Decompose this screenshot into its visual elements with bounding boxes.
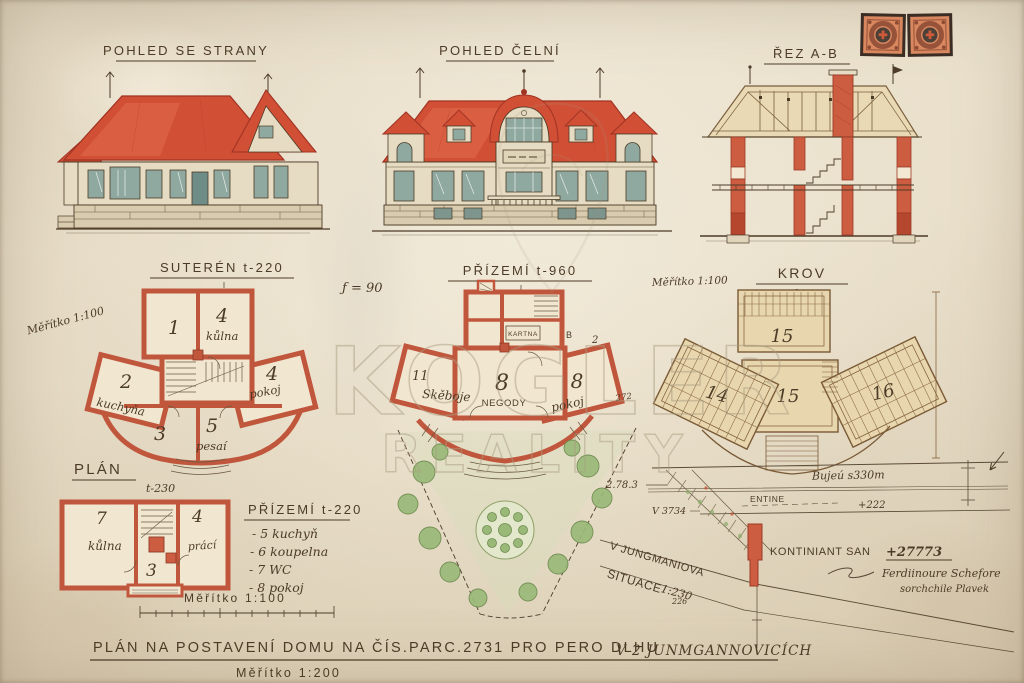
section-drawing xyxy=(700,64,928,243)
scale-bar-label: Měřítko 1:100 xyxy=(184,591,286,605)
lightning-rod-icon xyxy=(106,72,114,98)
blueprint-scan: POHLED SE STRANY POHLED ČELNÍ ŘEZ A-B xyxy=(0,0,1024,683)
side-view-title: POHLED SE STRANY xyxy=(103,43,269,58)
drawing-titles: POHLED SE STRANY POHLED ČELNÍ ŘEZ A-B xyxy=(103,43,850,64)
room-number: 4 xyxy=(215,305,228,327)
watermark-text: REALITY xyxy=(381,425,692,485)
suteren-plan-drawing: 1 4 kůlna 2 kuchyňa 4 pokoj 3 5 pesaí xyxy=(87,291,315,475)
revenue-stamps xyxy=(862,15,952,56)
sheet-scale: Měřítko 1:200 xyxy=(236,666,341,680)
signature-name: Ferdiinoure Schefore xyxy=(881,567,1001,580)
signature-scrawl xyxy=(828,568,874,578)
street-note: Bujeú s330m xyxy=(811,468,885,482)
suteren-title: SUTERÉN t-220 xyxy=(160,260,284,275)
line-label: ENTINE xyxy=(750,494,785,504)
prizemi-title: PŘÍZEMÍ t-960 xyxy=(463,263,578,278)
room-label: kůlna xyxy=(206,329,238,343)
room-number: 3 xyxy=(146,561,157,581)
room-label: kůlna xyxy=(88,538,122,553)
plan-small-height: t-230 xyxy=(146,482,175,495)
lightning-rod-icon xyxy=(416,68,424,98)
side-elevation-drawing xyxy=(56,72,330,233)
benchmark: V 3734 xyxy=(652,506,686,517)
kontiniant-label: KONTINIANT SAN xyxy=(770,546,871,558)
room-number: 1 xyxy=(168,317,180,339)
lightning-rod-icon xyxy=(596,68,604,98)
krov-scale-note: Měřítko 1:100 xyxy=(651,274,729,289)
north-arrow-icon xyxy=(990,452,1004,470)
revenue-stamp-icon xyxy=(909,15,952,56)
sheet-title: PLÁN NA POSTAVENÍ DOMU NA ČÍS.PARC.2731 … xyxy=(93,639,659,656)
slope-note: ƒ = 90 xyxy=(339,281,383,296)
footer-title-block: PLÁN NA POSTAVENÍ DOMU NA ČÍS.PARC.2731 … xyxy=(90,639,812,680)
legend-item: - 6 koupelna xyxy=(250,544,328,559)
room-label: prácí xyxy=(187,538,218,553)
front-elevation-drawing xyxy=(372,68,672,235)
room-number: 5 xyxy=(206,415,218,437)
plan-small-drawing: PLÁN t-230 7 kůlna 3 4 prácí xyxy=(62,461,228,596)
section-title: ŘEZ A-B xyxy=(773,46,839,61)
room-number: 3 xyxy=(154,423,166,445)
krov-title: KROV xyxy=(778,265,826,281)
room-number: 7 xyxy=(96,509,107,529)
suteren-scale-note: Měřítko 1:100 xyxy=(25,304,106,337)
watermark-text: KOGLER xyxy=(328,328,798,437)
signature-title: sorchchile Plavek xyxy=(900,584,989,595)
situace-label: SITUACE xyxy=(606,567,664,596)
revenue-stamp-icon xyxy=(862,15,905,56)
room-label: pesaí xyxy=(196,439,228,453)
kontiniant-value: +27773 xyxy=(886,545,942,560)
plan-small-title: PLÁN xyxy=(74,461,122,478)
sheet-title-suffix: V 2 JUNMGANNOVICÍCH xyxy=(616,643,812,659)
room-number: 4 xyxy=(191,507,203,527)
front-view-title: POHLED ČELNÍ xyxy=(439,43,561,58)
weather-vane-icon xyxy=(893,66,903,74)
legend-item: - 5 kuchyň xyxy=(252,526,318,541)
plot-marker xyxy=(748,524,762,586)
room-number: 2 xyxy=(119,371,132,393)
legend-title: PŘÍZEMÍ t-220 xyxy=(248,502,363,517)
legend-item: - 7 WC xyxy=(249,562,292,577)
benchmark: +222 xyxy=(858,500,885,511)
